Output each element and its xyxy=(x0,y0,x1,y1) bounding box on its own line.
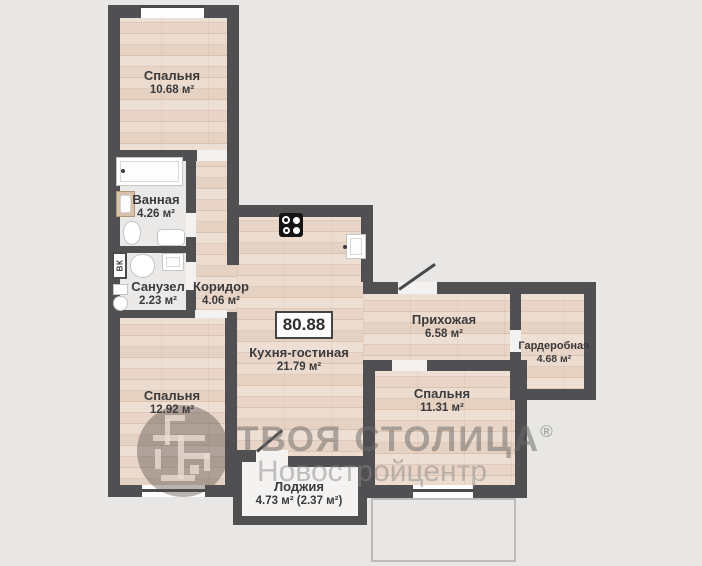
door-opening xyxy=(197,150,227,161)
burner xyxy=(282,216,290,224)
door-opening xyxy=(195,310,227,318)
wall xyxy=(108,310,195,318)
room-label-wc: Санузел 2.23 м² xyxy=(124,279,192,308)
logo-glyph xyxy=(165,419,170,445)
total-area-badge: 80.88 xyxy=(275,311,333,339)
kitchen-sink-bowl xyxy=(350,238,362,255)
wall xyxy=(427,360,515,371)
burner xyxy=(293,217,300,224)
logo-glyph xyxy=(190,465,199,474)
wall xyxy=(108,5,141,18)
ventilation-shaft: ВК xyxy=(112,252,127,279)
loggia-wall xyxy=(233,516,367,525)
shower-tray xyxy=(157,229,185,246)
bathtub-faucet xyxy=(121,169,125,173)
registered-mark: ® xyxy=(540,422,553,441)
wall xyxy=(236,205,372,217)
window xyxy=(413,489,473,492)
brand-watermark: ТВОЯ СТОЛИЦА® xyxy=(237,420,553,460)
floor-plan: ВК ТВОЯ СТОЛИЦА® Новостройцентр Спальня … xyxy=(0,0,702,566)
room-label-loggia: Лоджия 4.73 м² (2.37 м²) xyxy=(238,479,360,508)
bathtub xyxy=(116,157,183,186)
kitchen-sink xyxy=(346,234,366,259)
kitchen-sink-tap xyxy=(343,245,347,249)
toilet xyxy=(123,221,141,245)
room-label-kitchen-living: Кухня-гостиная 21.79 м² xyxy=(238,345,360,374)
door-opening xyxy=(392,360,427,371)
burner xyxy=(283,227,290,234)
room-label-corridor: Коридор 4.06 м² xyxy=(189,279,253,308)
wall xyxy=(510,282,521,330)
brand-logo xyxy=(137,405,229,497)
logo-glyph xyxy=(204,453,210,471)
wall xyxy=(363,282,398,294)
adjacent-unit-outline xyxy=(371,498,516,562)
room-label-bedroom-2: Спальня 12.92 м² xyxy=(112,388,232,417)
wall xyxy=(437,282,518,294)
room-label-hallway: Прихожая 6.58 м² xyxy=(394,312,494,341)
logo-glyph xyxy=(161,475,195,481)
room-label-bedroom-3: Спальня 11.31 м² xyxy=(381,386,503,415)
brand-name: ТВОЯ СТОЛИЦА xyxy=(237,420,540,459)
bathtub-rim xyxy=(120,161,179,182)
window xyxy=(141,5,204,8)
toilet xyxy=(130,254,155,278)
cooktop-icon xyxy=(279,213,303,237)
washbasin-bowl xyxy=(166,257,180,267)
washbasin xyxy=(162,253,184,271)
room-label-wardrobe: Гардеробная 4.68 м² xyxy=(510,340,598,366)
wall xyxy=(227,5,239,265)
window xyxy=(141,8,204,18)
burner xyxy=(293,227,300,234)
room-label-bathroom: Ванная 4.26 м² xyxy=(116,192,196,221)
logo-glyph xyxy=(155,449,161,469)
room-label-bedroom-1: Спальня 10.68 м² xyxy=(112,68,232,97)
ventilation-shaft-label: ВК xyxy=(115,260,124,272)
